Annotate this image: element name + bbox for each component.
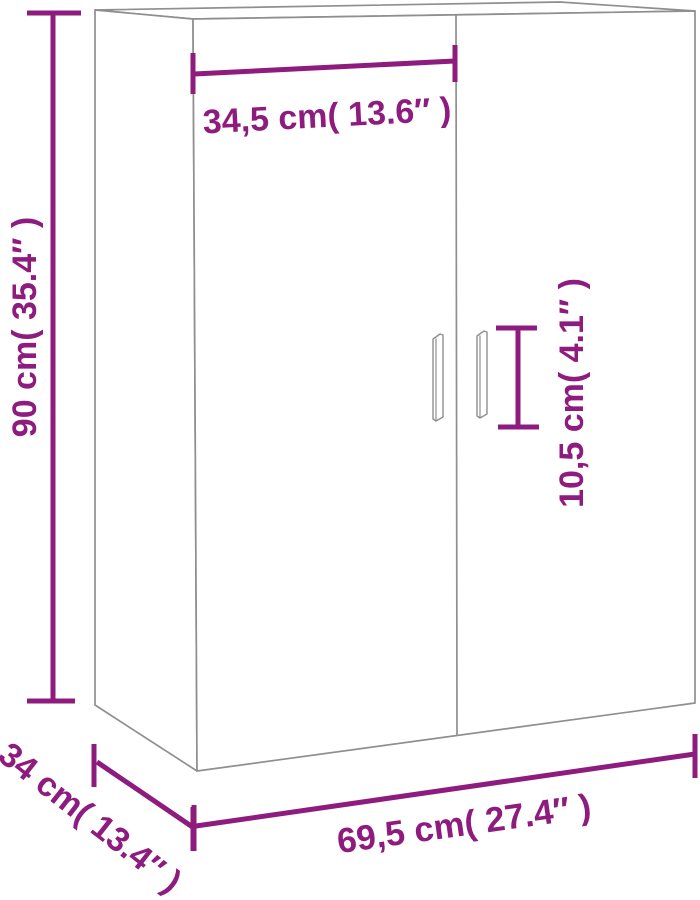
diagram-canvas: 34,5 cm( 13.6″ ) 90 cm( 35.4″ ) 10,5 cm(…	[0, 0, 700, 900]
right-door-handle	[477, 331, 487, 418]
right-handle-outline	[477, 331, 487, 418]
dimension-height: 90 cm( 35.4″ )	[6, 13, 81, 701]
handle-length-label: 10,5 cm( 4.1″ )	[553, 278, 591, 508]
cabinet-left-side-panel	[95, 10, 197, 771]
dimension-depth: 34 cm( 13.4″ )	[0, 735, 194, 900]
left-handle-outline	[433, 334, 443, 421]
left-door-handle	[433, 334, 443, 421]
door-divider-line	[456, 16, 457, 735]
height-label: 90 cm( 35.4″ )	[6, 217, 44, 437]
cabinet-dimension-diagram: 34,5 cm( 13.6″ ) 90 cm( 35.4″ ) 10,5 cm(…	[0, 0, 700, 900]
